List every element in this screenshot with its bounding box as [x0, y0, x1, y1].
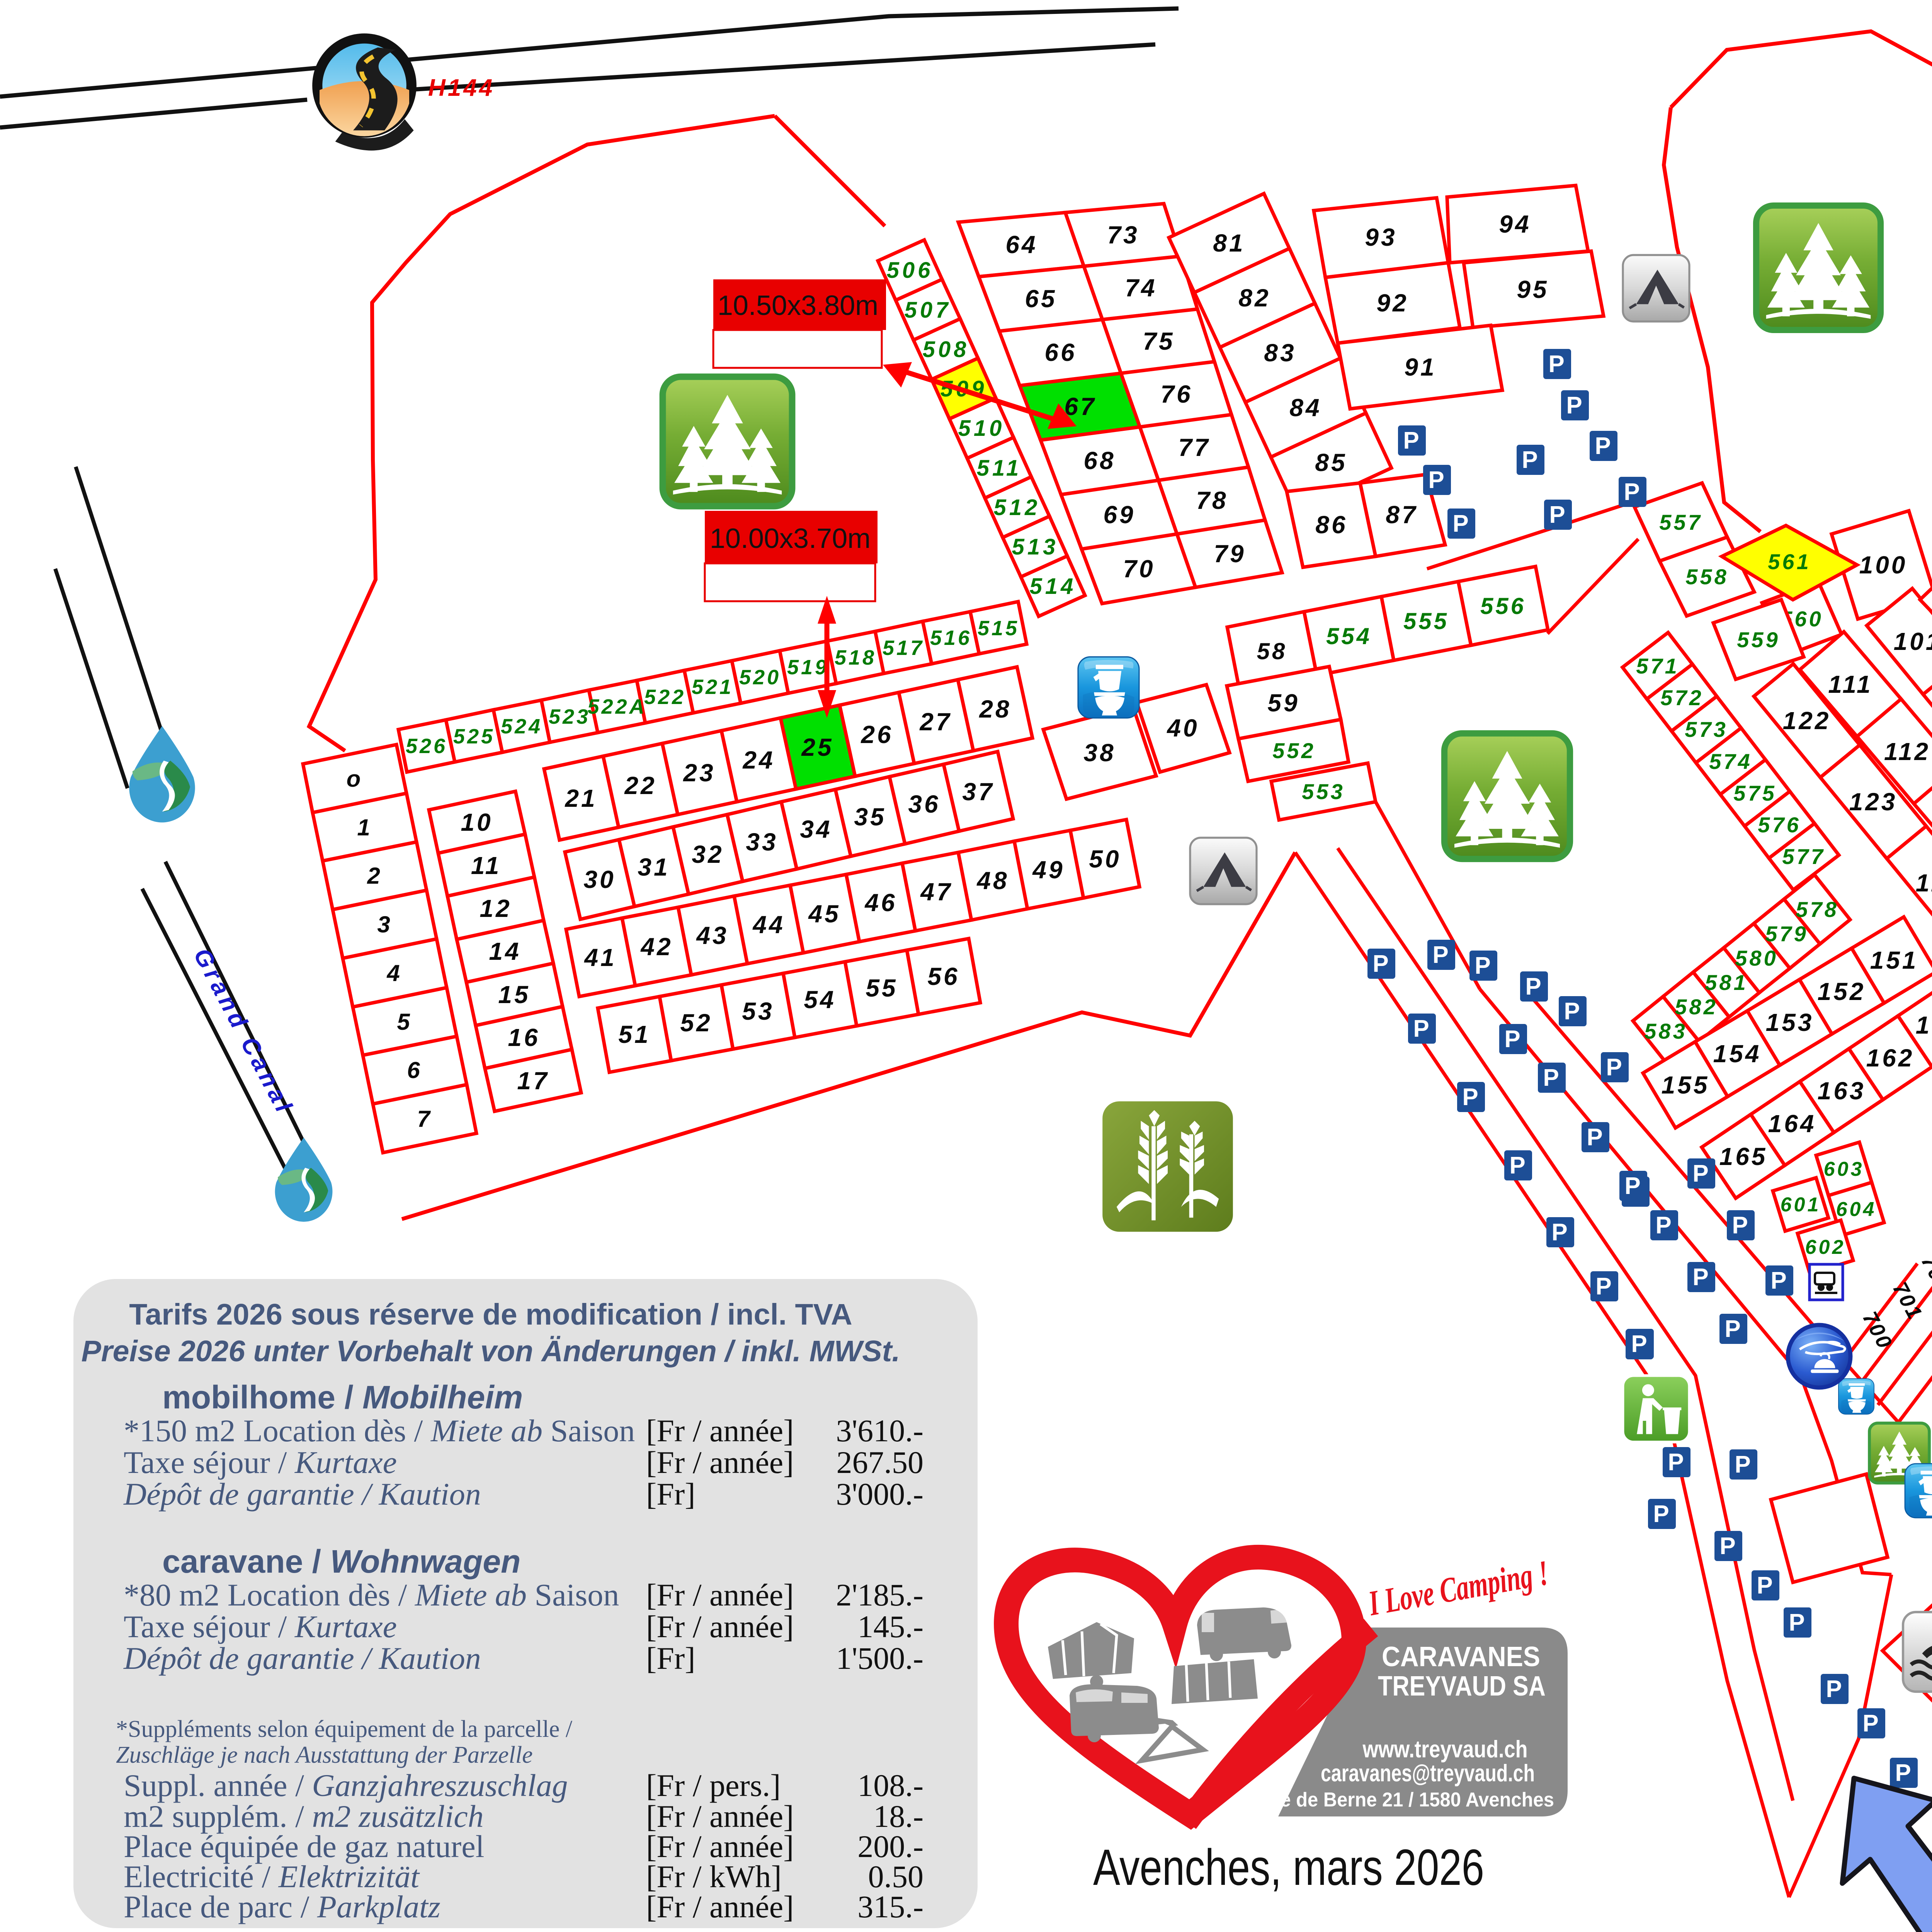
svg-text:caravanes@treyvaud.ch: caravanes@treyvaud.ch: [1321, 1760, 1535, 1787]
svg-text:30: 30: [583, 866, 616, 893]
svg-text:519: 519: [787, 656, 829, 679]
svg-text:561: 561: [1768, 549, 1811, 574]
svg-text:75: 75: [1143, 327, 1175, 355]
svg-text:95: 95: [1517, 276, 1549, 303]
svg-text:35: 35: [854, 803, 886, 831]
svg-text:571: 571: [1636, 654, 1679, 678]
svg-text:122: 122: [1783, 707, 1831, 735]
svg-text:112: 112: [1884, 738, 1930, 765]
svg-text:517: 517: [883, 636, 924, 660]
svg-text:73: 73: [1107, 221, 1139, 249]
svg-text:76: 76: [1160, 380, 1192, 408]
svg-text:5: 5: [397, 1009, 412, 1035]
svg-text:583: 583: [1644, 1019, 1687, 1043]
svg-text:53: 53: [742, 997, 774, 1025]
svg-text:151: 151: [1870, 946, 1918, 974]
svg-text:524: 524: [501, 715, 543, 738]
svg-text:512: 512: [994, 495, 1041, 520]
svg-text:601: 601: [1781, 1194, 1821, 1216]
svg-text:47: 47: [920, 878, 952, 906]
svg-text:69: 69: [1103, 501, 1135, 529]
svg-text:510: 510: [958, 416, 1005, 441]
svg-text:70: 70: [1123, 555, 1155, 583]
svg-text:52: 52: [680, 1009, 712, 1037]
svg-text:552: 552: [1272, 738, 1315, 763]
svg-text:34: 34: [800, 815, 832, 843]
svg-text:Taxe séjour / Kurtaxe: Taxe séjour / Kurtaxe: [124, 1609, 397, 1644]
svg-text:27: 27: [919, 708, 952, 736]
svg-text:602: 602: [1805, 1236, 1846, 1259]
svg-text:161: 161: [1916, 1011, 1932, 1039]
svg-text:164: 164: [1768, 1110, 1816, 1138]
svg-text:33: 33: [746, 828, 778, 856]
svg-text:507: 507: [905, 298, 951, 323]
svg-text:Dépôt de garantie / Kaution: Dépôt de garantie / Kaution: [123, 1476, 481, 1512]
svg-text:91: 91: [1404, 353, 1436, 381]
svg-text:506: 506: [887, 258, 934, 283]
svg-text:3'000.-: 3'000.-: [836, 1476, 923, 1512]
svg-text:28: 28: [979, 695, 1011, 723]
svg-text:10.00x3.70m: 10.00x3.70m: [710, 523, 871, 554]
svg-text:574: 574: [1709, 749, 1752, 774]
svg-text:23: 23: [683, 759, 715, 787]
svg-text:mobilhome / Mobilheim: mobilhome / Mobilheim: [162, 1379, 523, 1415]
svg-text:165: 165: [1719, 1143, 1768, 1170]
svg-text:66: 66: [1044, 338, 1077, 366]
svg-text:93: 93: [1365, 223, 1397, 251]
svg-text:Tarifs 2026 sous réserve de mo: Tarifs 2026 sous réserve de modification…: [129, 1298, 852, 1331]
svg-text:572: 572: [1660, 685, 1703, 710]
svg-text:516: 516: [930, 626, 972, 650]
svg-text:26: 26: [861, 721, 893, 748]
svg-text:[Fr / année]: [Fr / année]: [646, 1609, 794, 1644]
svg-text:123: 123: [1849, 788, 1898, 816]
svg-text:108.-: 108.-: [857, 1768, 923, 1803]
svg-text:Suppl. année / Ganzjahreszusch: Suppl. année / Ganzjahreszuschlag: [124, 1768, 568, 1803]
svg-text:10.50x3.80m: 10.50x3.80m: [718, 290, 878, 321]
svg-text:55: 55: [866, 974, 898, 1002]
svg-text:163: 163: [1818, 1077, 1866, 1105]
svg-text:*150 m2 Location dès / Miete a: *150 m2 Location dès / Miete ab Saison: [124, 1413, 635, 1448]
svg-text:Zuschläge je nach Ausstattung: Zuschläge je nach Ausstattung der Parzel…: [116, 1742, 533, 1768]
svg-text:94: 94: [1499, 210, 1531, 238]
svg-text:577: 577: [1782, 844, 1825, 869]
svg-text:7: 7: [417, 1106, 432, 1132]
svg-text:[Fr / année]: [Fr / année]: [646, 1577, 794, 1612]
svg-text:101: 101: [1894, 628, 1932, 655]
svg-text:caravane / Wohnwagen: caravane / Wohnwagen: [162, 1543, 520, 1580]
svg-text:67: 67: [1064, 393, 1096, 420]
svg-text:54: 54: [804, 986, 836, 1014]
svg-text:43: 43: [696, 922, 728, 949]
svg-text:12: 12: [480, 895, 512, 922]
svg-text:557: 557: [1659, 510, 1702, 534]
svg-text:525: 525: [453, 725, 495, 748]
svg-text:153: 153: [1766, 1009, 1814, 1036]
svg-text:TREYVAUD SA: TREYVAUD SA: [1378, 1671, 1546, 1702]
svg-text:68: 68: [1083, 447, 1116, 474]
svg-text:10: 10: [461, 808, 493, 836]
svg-text:511: 511: [977, 456, 1022, 481]
svg-text:[Fr]: [Fr]: [646, 1641, 696, 1676]
svg-text:6: 6: [407, 1057, 422, 1083]
svg-text:578: 578: [1796, 897, 1838, 922]
svg-text:1: 1: [357, 815, 372, 840]
svg-text:604: 604: [1836, 1198, 1877, 1221]
svg-text:315.-: 315.-: [857, 1889, 923, 1924]
svg-text:H144: H144: [428, 75, 495, 101]
svg-text:521: 521: [692, 675, 733, 699]
svg-text:555: 555: [1403, 608, 1449, 634]
svg-text:59: 59: [1267, 689, 1299, 717]
svg-text:3'610.-: 3'610.-: [836, 1413, 923, 1448]
svg-text:24: 24: [742, 746, 775, 774]
svg-text:92: 92: [1376, 289, 1408, 317]
svg-text:40: 40: [1166, 714, 1199, 742]
svg-text:3: 3: [377, 912, 392, 937]
svg-text:22: 22: [624, 772, 656, 799]
svg-text:515: 515: [978, 617, 1019, 640]
svg-text:64: 64: [1005, 231, 1037, 259]
svg-text:573: 573: [1685, 717, 1728, 742]
svg-text:41: 41: [583, 944, 616, 971]
svg-text:522A: 522A: [587, 695, 646, 718]
svg-text:32: 32: [692, 840, 724, 868]
svg-text:603: 603: [1824, 1158, 1864, 1180]
svg-text:124: 124: [1916, 869, 1932, 897]
svg-text:100: 100: [1859, 551, 1908, 579]
svg-text:155: 155: [1662, 1071, 1710, 1099]
svg-text:[Fr]: [Fr]: [646, 1476, 696, 1512]
svg-text:575: 575: [1733, 781, 1776, 805]
svg-text:46: 46: [864, 889, 897, 917]
svg-text:579: 579: [1765, 922, 1808, 946]
svg-text:522: 522: [644, 685, 686, 709]
svg-text:556: 556: [1480, 593, 1526, 619]
svg-text:79: 79: [1214, 540, 1246, 568]
svg-text:520: 520: [739, 666, 781, 689]
svg-text:44: 44: [752, 911, 785, 939]
svg-text:152: 152: [1818, 978, 1866, 1005]
svg-text:65: 65: [1025, 285, 1057, 313]
svg-text:582: 582: [1675, 995, 1718, 1019]
svg-text:81: 81: [1213, 229, 1245, 257]
svg-text:77: 77: [1178, 434, 1210, 461]
svg-text:559: 559: [1737, 628, 1780, 652]
svg-text:111: 111: [1828, 670, 1872, 698]
svg-text:[Fr / année]: [Fr / année]: [646, 1445, 794, 1480]
svg-text:526: 526: [406, 735, 447, 758]
svg-text:31: 31: [638, 853, 670, 881]
svg-text:16: 16: [508, 1024, 540, 1051]
svg-text:1'500.-: 1'500.-: [836, 1641, 923, 1676]
svg-text:11: 11: [471, 852, 501, 879]
svg-text:513: 513: [1012, 534, 1059, 560]
svg-text:58: 58: [1257, 638, 1287, 664]
svg-text:523: 523: [549, 705, 590, 728]
svg-text:86: 86: [1315, 511, 1347, 539]
svg-text:Preise 2026 unter Vorbehalt vo: Preise 2026 unter Vorbehalt von Änderung…: [81, 1335, 900, 1368]
svg-text:36: 36: [908, 790, 940, 818]
svg-text:Dépôt de garantie / Kaution: Dépôt de garantie / Kaution: [123, 1641, 481, 1676]
svg-text:[Fr / pers.]: [Fr / pers.]: [646, 1768, 781, 1803]
svg-text:82: 82: [1238, 284, 1270, 312]
svg-text:553: 553: [1302, 779, 1345, 804]
svg-text:14: 14: [489, 937, 521, 965]
svg-text:38: 38: [1083, 739, 1116, 767]
svg-text:25: 25: [801, 733, 833, 761]
svg-text:154: 154: [1713, 1040, 1762, 1068]
svg-text:*Suppléments selon équipement: *Suppléments selon équipement de la parc…: [116, 1716, 573, 1742]
svg-text:Place de parc / Parkplatz: Place de parc / Parkplatz: [124, 1889, 440, 1924]
svg-text:87: 87: [1386, 501, 1418, 529]
svg-text:49: 49: [1032, 856, 1065, 884]
svg-text:50: 50: [1089, 845, 1121, 873]
svg-text:2: 2: [367, 863, 382, 889]
svg-text:17: 17: [517, 1067, 549, 1095]
svg-text:145.-: 145.-: [857, 1609, 923, 1644]
svg-text:580: 580: [1735, 946, 1778, 970]
svg-text:581: 581: [1705, 970, 1748, 995]
svg-text:Taxe séjour / Kurtaxe: Taxe séjour / Kurtaxe: [124, 1445, 397, 1480]
svg-text:o: o: [347, 766, 363, 792]
svg-text:2'185.-: 2'185.-: [836, 1577, 923, 1612]
svg-text:518: 518: [835, 646, 876, 669]
svg-text:554: 554: [1326, 623, 1372, 649]
svg-text:37: 37: [962, 778, 994, 806]
svg-text:Avenches, mars 2026: Avenches, mars 2026: [1093, 1839, 1484, 1896]
svg-text:rte de Berne 21 / 1580 Avenche: rte de Berne 21 / 1580 Avenches: [1267, 1789, 1554, 1811]
svg-text:84: 84: [1289, 394, 1321, 422]
svg-text:48: 48: [976, 867, 1009, 895]
svg-text:83: 83: [1264, 339, 1296, 367]
svg-text:www.treyvaud.ch: www.treyvaud.ch: [1362, 1736, 1528, 1763]
svg-text:CARAVANES: CARAVANES: [1382, 1641, 1540, 1672]
svg-text:162: 162: [1866, 1044, 1915, 1072]
svg-text:74: 74: [1125, 274, 1157, 302]
svg-text:45: 45: [808, 900, 840, 928]
svg-text:51: 51: [618, 1020, 650, 1048]
svg-text:15: 15: [498, 981, 530, 1009]
svg-text:*80 m2 Location dès / Miete ab: *80 m2 Location dès / Miete ab Saison: [124, 1577, 619, 1612]
svg-text:[Fr / année]: [Fr / année]: [646, 1413, 794, 1448]
svg-text:21: 21: [565, 784, 597, 812]
svg-text:[Fr / année]: [Fr / année]: [646, 1889, 794, 1924]
svg-text:78: 78: [1196, 486, 1228, 514]
svg-text:508: 508: [923, 337, 969, 362]
svg-text:42: 42: [640, 933, 673, 961]
svg-text:576: 576: [1758, 813, 1801, 837]
svg-text:267.50: 267.50: [837, 1445, 924, 1480]
svg-text:558: 558: [1685, 565, 1728, 589]
svg-text:514: 514: [1030, 574, 1077, 599]
svg-text:4: 4: [386, 960, 402, 986]
svg-text:85: 85: [1315, 449, 1347, 476]
svg-text:56: 56: [927, 963, 959, 990]
